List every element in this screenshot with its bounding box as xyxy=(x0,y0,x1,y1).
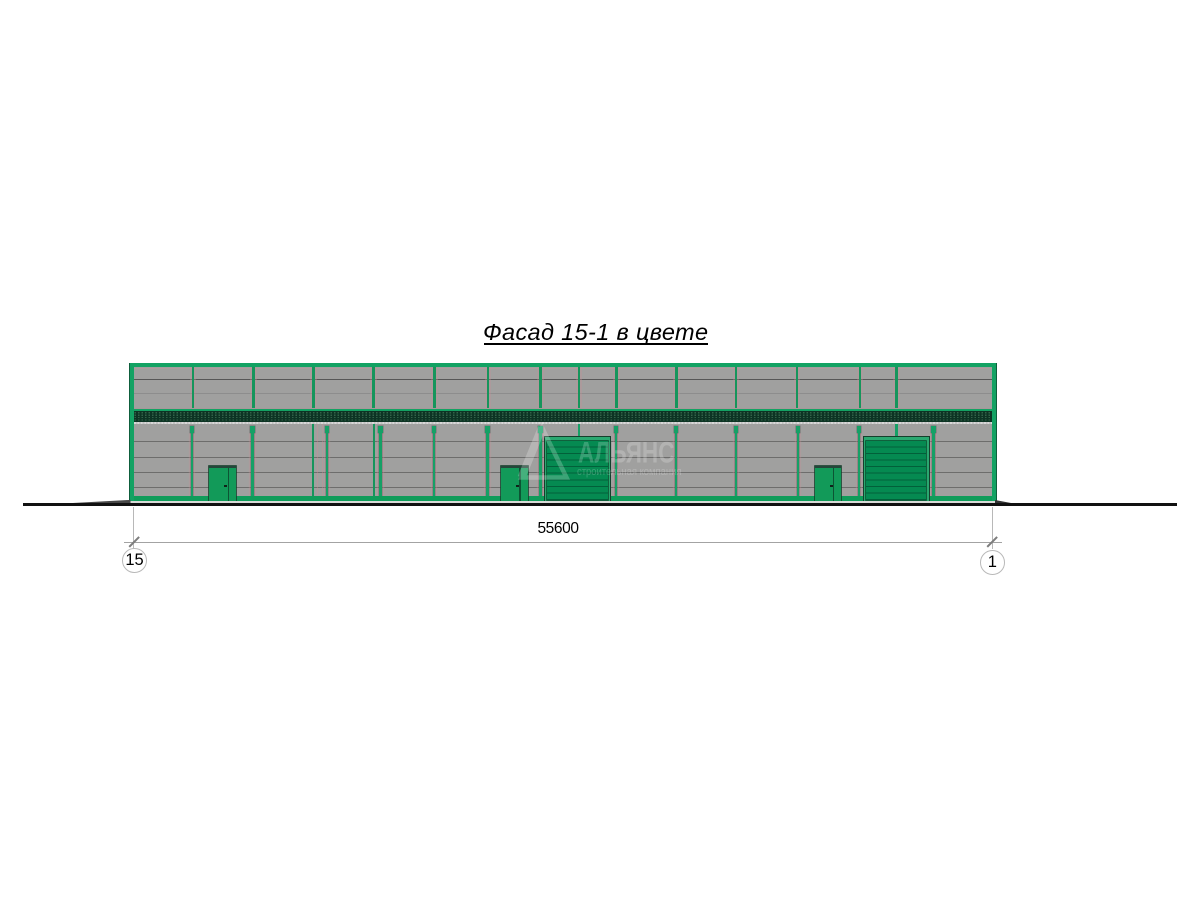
svg-text:строительная компания: строительная компания xyxy=(577,466,682,478)
svg-text:АЛЬЯНС: АЛЬЯНС xyxy=(578,437,675,470)
